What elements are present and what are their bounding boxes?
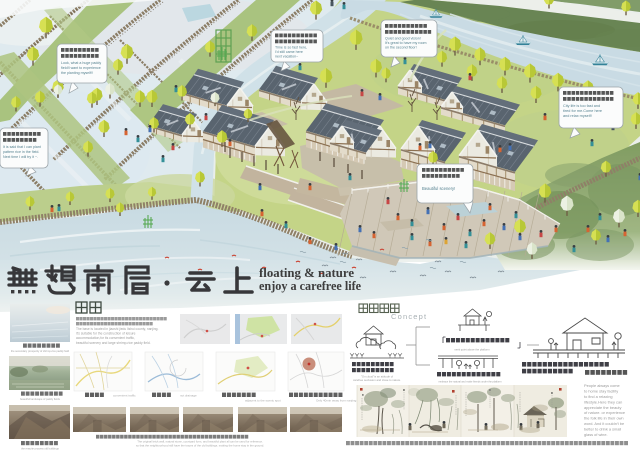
svg-text:The base is located in jiaoshi: The base is located in jiaoshi jiedu lis…: [76, 327, 158, 331]
svg-text:beautiful scenery and large sh: beautiful scenery and large shrimp-rice …: [76, 341, 151, 345]
svg-text:embrace the natural and make f: embrace the natural and make friends und…: [438, 380, 501, 383]
svg-text:beautiful landscape of paddy f: beautiful landscape of paddy fields: [20, 397, 61, 401]
svg-text:convenient traffic: convenient traffic: [113, 394, 136, 398]
svg-text:carefree seclusion and close t: carefree seclusion and close to nature.: [353, 378, 401, 382]
svg-text:Concept: Concept: [391, 312, 427, 321]
svg-text:People always come: People always come: [584, 383, 620, 388]
svg-text:glass of wine.: glass of wine.: [584, 432, 608, 437]
svg-text:the folk life in their own: the folk life in their own: [584, 416, 624, 421]
svg-text:appreciate the beauty: appreciate the beauty: [584, 405, 621, 410]
svg-text:seek quiet above the platform: seek quiet above the platform: [454, 348, 490, 352]
svg-text:to home stay facility: to home stay facility: [584, 388, 618, 393]
svg-text:to find a relaxing: to find a relaxing: [584, 394, 613, 399]
svg-text:better to drink a small: better to drink a small: [584, 427, 621, 432]
svg-text:adjacent to the scenic spot: adjacent to the scenic spot: [245, 398, 281, 402]
svg-text:word. And it couldn't be: word. And it couldn't be: [584, 421, 624, 426]
svg-text:of nature. or experience: of nature. or experience: [584, 410, 625, 415]
svg-text:accommodation,for its convenie: accommodation,for its convenient traffic…: [76, 336, 135, 340]
svg-text:so that the neighbourhood stil: so that the neighbourhood still have the…: [136, 444, 264, 448]
svg-text:the ensuite process old buildi: the ensuite process old buildings: [21, 447, 59, 451]
svg-text:not drainage: not drainage: [180, 394, 197, 398]
svg-text:the secondary prosperity of sh: the secondary prosperity of shrimp-rice …: [11, 349, 70, 353]
svg-text:Only 40min away from nanjing: Only 40min away from nanjing: [316, 398, 357, 402]
svg-text:it's suitable for the construc: it's suitable for the construction of le…: [76, 332, 136, 336]
svg-text:lifestyle.Here they can: lifestyle.Here they can: [584, 399, 622, 404]
svg-text:enjoy a carefree life: enjoy a carefree life: [259, 279, 362, 293]
svg-text:floating & nature: floating & nature: [259, 266, 354, 280]
